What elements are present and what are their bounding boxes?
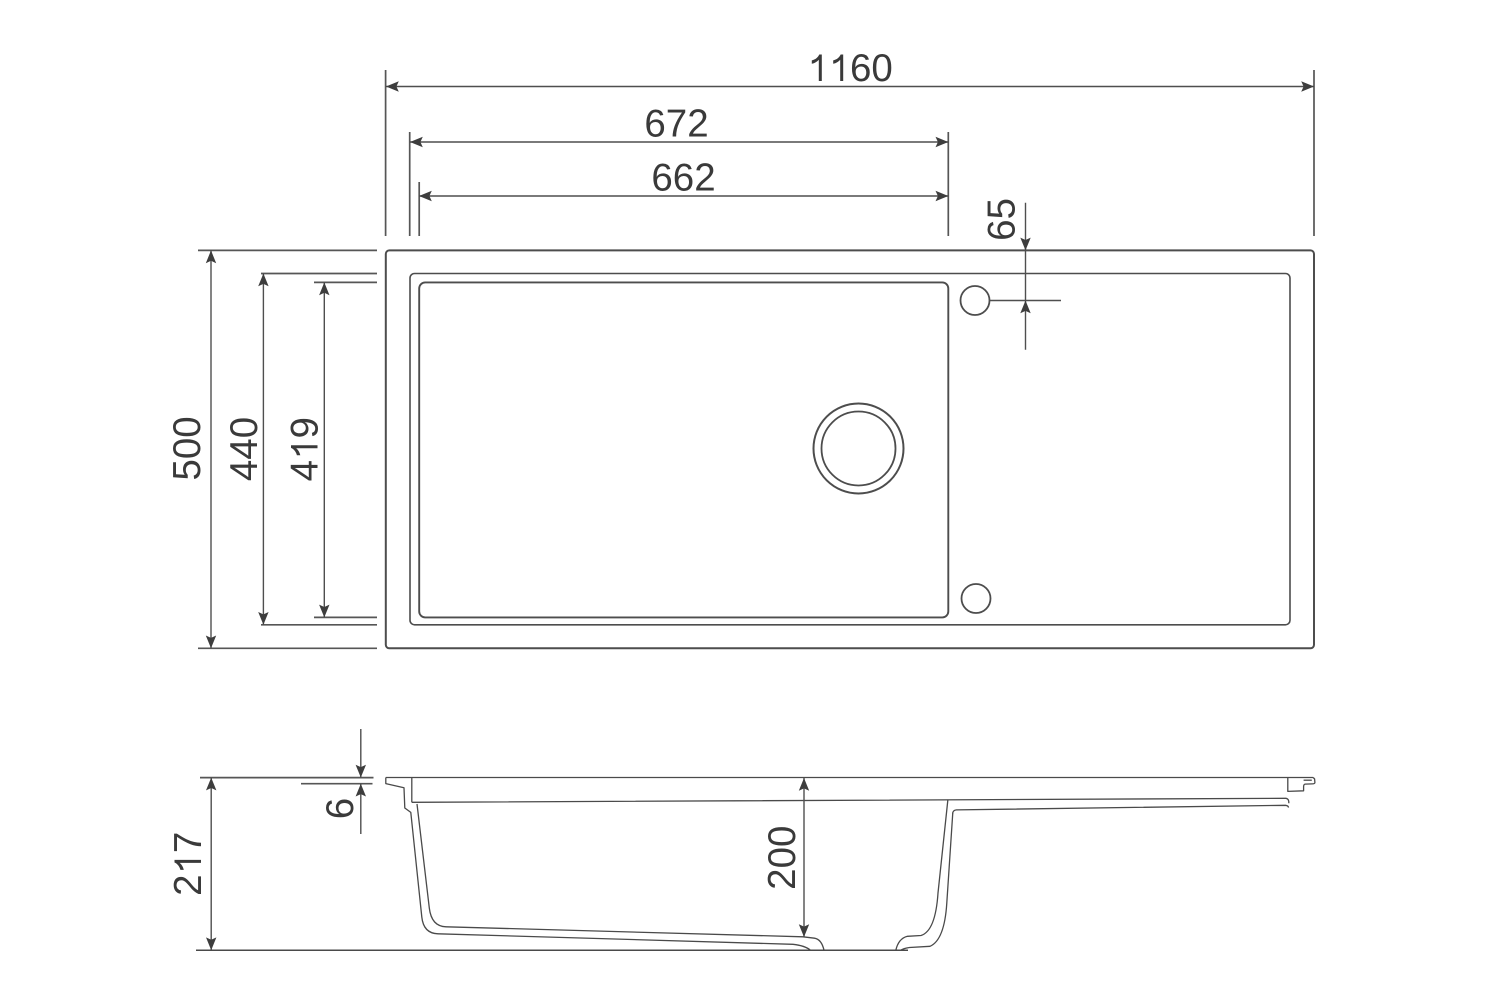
svg-text:500: 500 [166, 416, 209, 480]
svg-text:9: 9 [284, 417, 327, 438]
svg-text:200: 200 [761, 826, 804, 890]
svg-text:60: 60 [850, 47, 893, 90]
svg-text:7: 7 [167, 832, 210, 853]
svg-text:440: 440 [223, 417, 266, 481]
svg-text:6: 6 [319, 798, 362, 819]
svg-text:672: 672 [644, 103, 708, 146]
svg-text:65: 65 [981, 198, 1024, 241]
svg-text:662: 662 [651, 157, 715, 200]
svg-text:2: 2 [167, 874, 210, 895]
svg-text:4: 4 [284, 460, 327, 481]
